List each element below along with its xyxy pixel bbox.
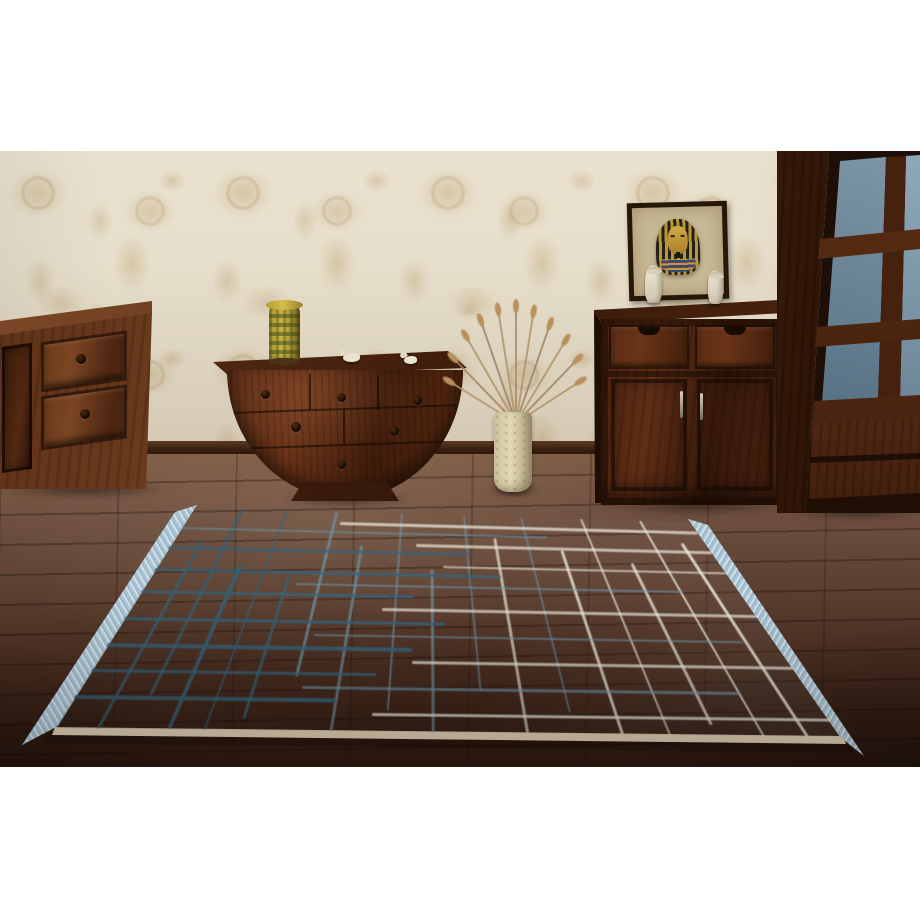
cabinet-handle-left: [680, 391, 683, 418]
cabinet-drawer-right: [697, 327, 773, 367]
dresser-door: [2, 343, 32, 473]
console-knob: [413, 396, 422, 405]
mask-face: [667, 226, 688, 255]
floor-vase-body: [494, 412, 532, 492]
cabinet-door-left: [611, 379, 687, 491]
cabinet-handle-right: [700, 393, 703, 420]
bird-figurine: [343, 353, 360, 362]
white-figurine-right: [708, 270, 723, 304]
console-knob: [337, 460, 346, 469]
console-seam: [343, 410, 345, 444]
console-knob: [337, 393, 346, 402]
dresser-knob-lower: [80, 409, 90, 419]
console-seam: [241, 440, 449, 449]
cabinet-door-right: [697, 379, 773, 491]
dried-stalks: [455, 301, 580, 423]
console-seam: [377, 376, 379, 410]
white-figurine-left: [645, 265, 662, 303]
bird-figurine: [404, 356, 417, 364]
room-photo: [0, 151, 920, 767]
cabinet-drawer-left: [611, 327, 687, 367]
cabinet-rail: [608, 371, 776, 377]
cabinet-body: [601, 319, 783, 505]
console-seam: [233, 404, 457, 414]
console-knob: [261, 390, 270, 399]
console-knob: [389, 426, 399, 436]
dresser-knob-upper: [76, 354, 86, 364]
ceramic-vase: [269, 304, 300, 363]
console-knob: [291, 422, 301, 432]
photo-page: [0, 0, 920, 920]
console-seam: [309, 374, 311, 410]
